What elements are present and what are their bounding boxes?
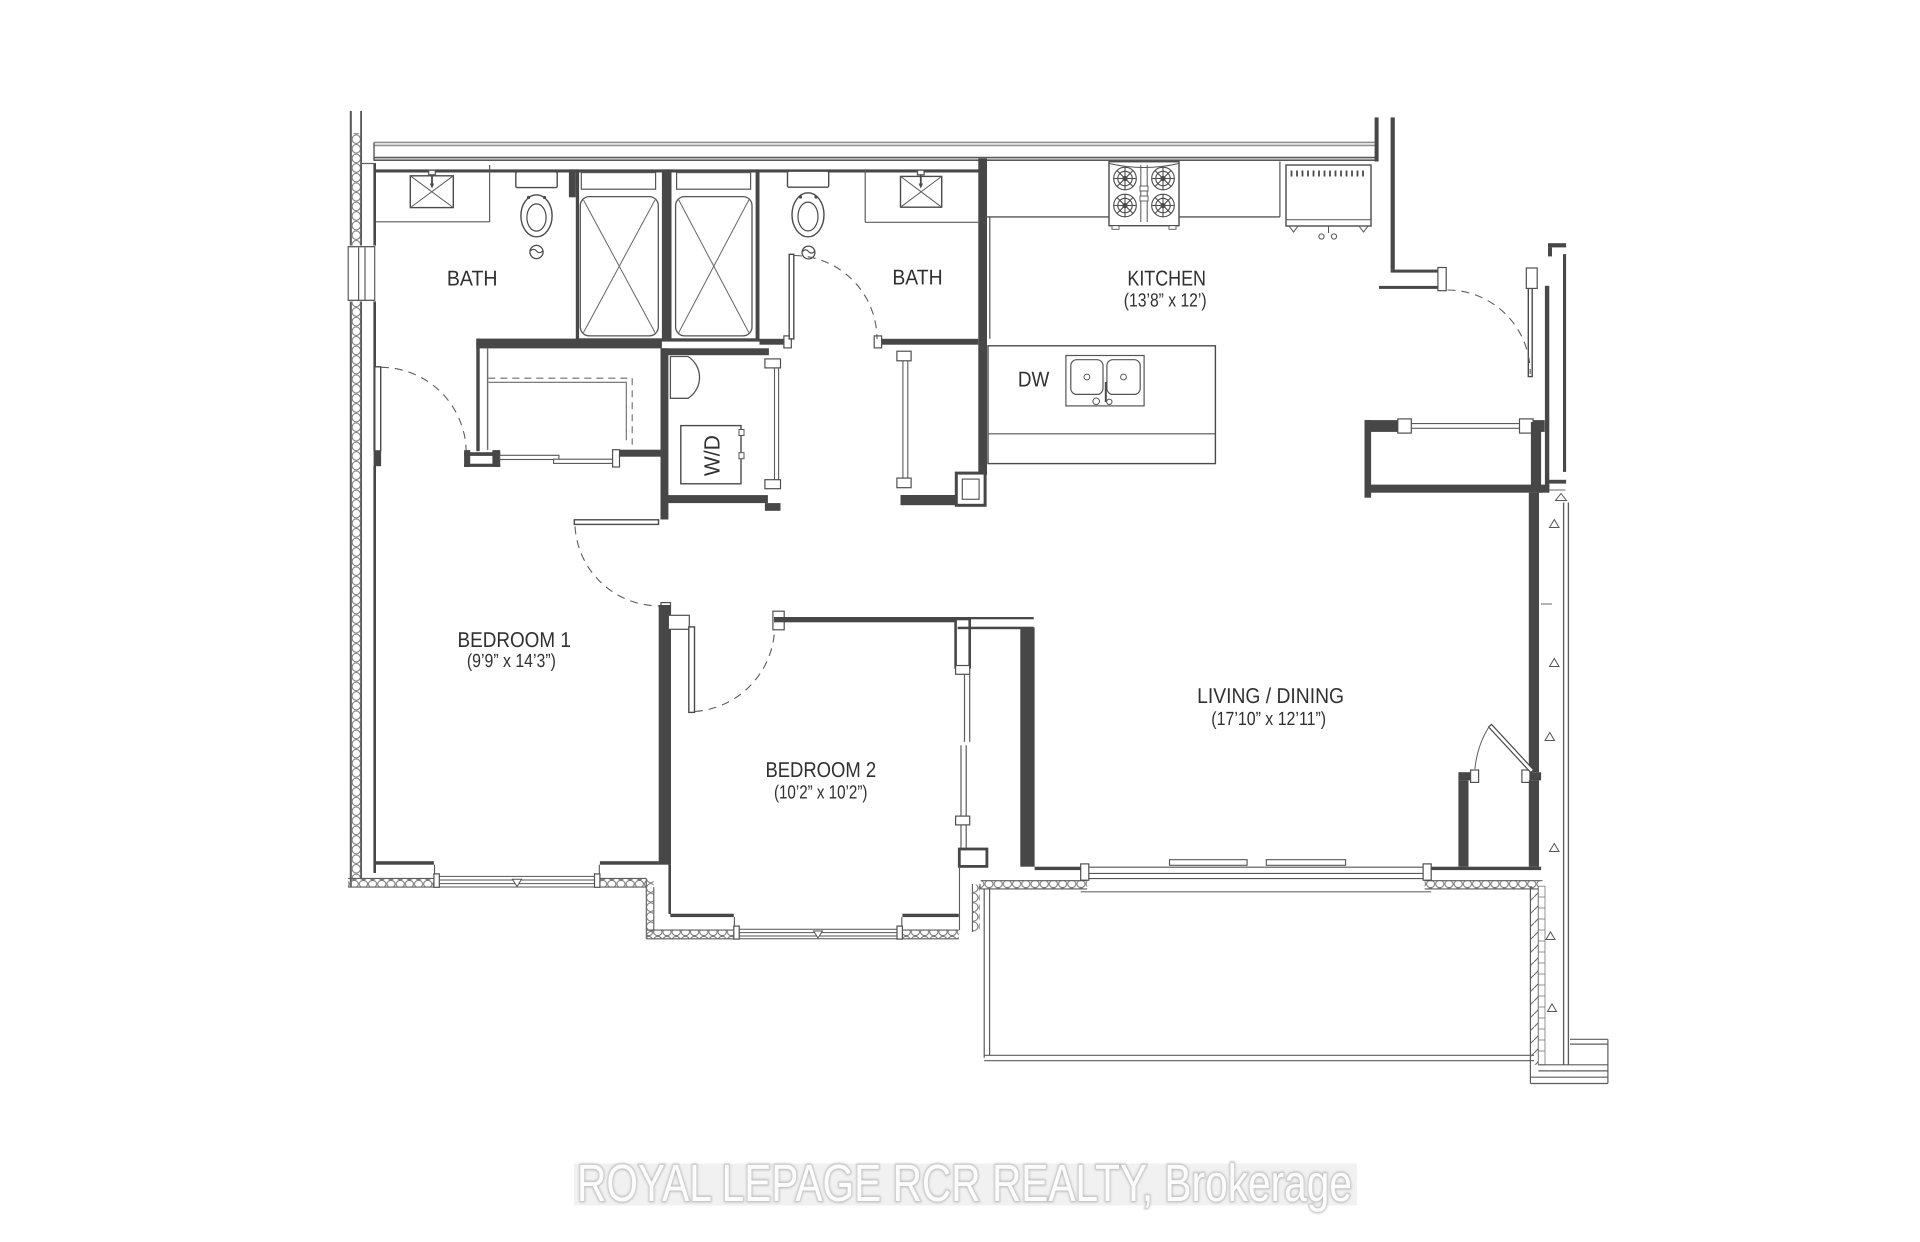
svg-text:(9’9” x 14’3”): (9’9” x 14’3”) [467, 651, 556, 672]
svg-text:BEDROOM 2: BEDROOM 2 [765, 758, 876, 782]
svg-text:(10’2” x 10’2”): (10’2” x 10’2”) [774, 783, 868, 804]
svg-text:LIVING / DINING: LIVING / DINING [1197, 684, 1344, 708]
svg-text:(17’10” x 12’11”): (17’10” x 12’11”) [1211, 709, 1326, 730]
svg-text:DW: DW [1018, 368, 1050, 392]
svg-text:BEDROOM 1: BEDROOM 1 [458, 628, 571, 652]
svg-text:(13’8” x 12’): (13’8” x 12’) [1124, 291, 1207, 312]
svg-text:BATH: BATH [447, 267, 498, 291]
svg-text:ROYAL LEPAGE RCR REALTY, Broke: ROYAL LEPAGE RCR REALTY, Brokerage [577, 1154, 1352, 1213]
svg-text:KITCHEN: KITCHEN [1127, 267, 1206, 291]
svg-text:W/D: W/D [700, 435, 725, 476]
svg-text:BATH: BATH [892, 266, 942, 290]
